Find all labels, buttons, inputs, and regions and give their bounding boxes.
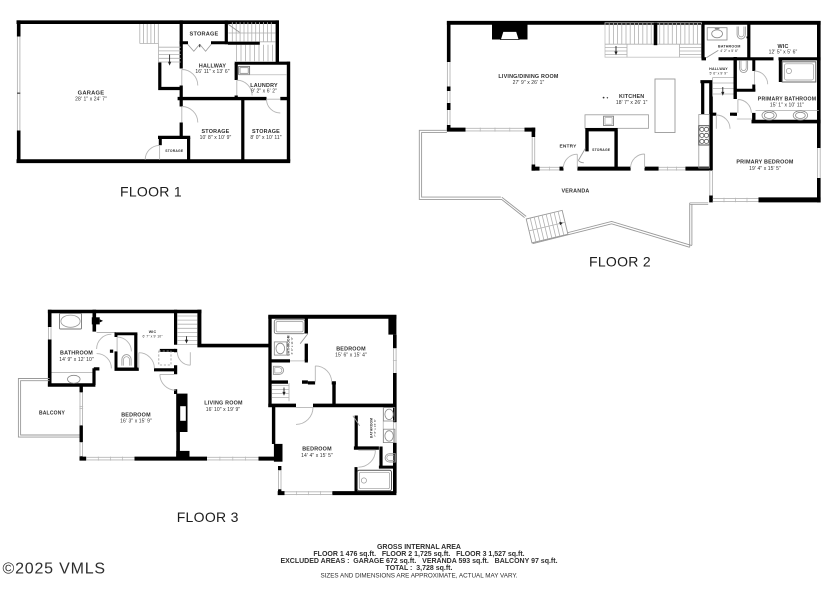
svg-text:14' 4" x 15' 5": 14' 4" x 15' 5" <box>301 453 333 459</box>
svg-text:BEDROOM: BEDROOM <box>302 447 332 453</box>
svg-text:6' 0" x 11' 0": 6' 0" x 11' 0" <box>290 337 294 355</box>
svg-text:STORAGE: STORAGE <box>190 31 219 37</box>
svg-text:15' 6" x 15' 4": 15' 6" x 15' 4" <box>335 353 367 359</box>
svg-text:BALCONY: BALCONY <box>39 410 66 416</box>
svg-text:STORAGE: STORAGE <box>165 149 184 153</box>
svg-text:12' 5" x 5' 6": 12' 5" x 5' 6" <box>769 50 798 56</box>
svg-text:FLOOR 2: FLOOR 2 <box>589 254 651 270</box>
svg-text:VERANDA: VERANDA <box>561 188 589 194</box>
svg-text:16' 3" x 15' 9": 16' 3" x 15' 9" <box>120 419 152 425</box>
svg-text:HALLWAY: HALLWAY <box>709 67 728 71</box>
svg-text:FLOOR 3: FLOOR 3 <box>177 509 239 525</box>
svg-text:6' 7" x 9' 10": 6' 7" x 9' 10" <box>143 335 164 339</box>
svg-text:WIC: WIC <box>149 330 157 334</box>
svg-text:GROSS INTERNAL AREA: GROSS INTERNAL AREA <box>377 544 461 551</box>
svg-text:SIZES AND DIMENSIONS ARE APPRO: SIZES AND DIMENSIONS ARE APPROXIMATE, AC… <box>320 573 517 580</box>
svg-text:TOTAL : 3,728 sq.ft.: TOTAL : 3,728 sq.ft. <box>386 565 453 572</box>
svg-text:5' 6" x 9' 9": 5' 6" x 9' 9" <box>709 72 728 76</box>
svg-text:28' 1" x 24' 7": 28' 1" x 24' 7" <box>75 96 107 102</box>
svg-text:10' 8" x 10' 9": 10' 8" x 10' 9" <box>200 135 232 141</box>
svg-text:19' 4" x 15' 5": 19' 4" x 15' 5" <box>749 166 781 172</box>
svg-text:FLOOR 1: FLOOR 1 <box>120 184 182 200</box>
svg-text:PRIMARY BEDROOM: PRIMARY BEDROOM <box>736 159 794 165</box>
svg-text:4' 2" x 5' 6": 4' 2" x 5' 6" <box>720 49 739 53</box>
svg-text:LIVING/DINING ROOM: LIVING/DINING ROOM <box>498 74 559 80</box>
svg-text:FLOOR 1 476 sq.ft. FLOOR 2 1: FLOOR 1 476 sq.ft. FLOOR 2 1,725 sq.ft. … <box>313 551 524 558</box>
svg-text:8' 0" x 10' 11": 8' 0" x 10' 11" <box>250 135 281 141</box>
svg-text:9' 2" x 6' 2": 9' 2" x 6' 2" <box>251 89 277 95</box>
svg-text:BEDROOM: BEDROOM <box>121 412 151 418</box>
svg-text:ENTRY: ENTRY <box>559 144 577 150</box>
svg-text:15' 1" x 10' 11": 15' 1" x 10' 11" <box>770 102 804 108</box>
svg-text:LIVING ROOM: LIVING ROOM <box>204 401 243 407</box>
svg-text:BEDROOM: BEDROOM <box>336 346 366 352</box>
svg-text:7' 8" x 15' 8": 7' 8" x 15' 8" <box>373 419 377 437</box>
svg-text:EXCLUDED AREAS : GARAGE 672 s: EXCLUDED AREAS : GARAGE 672 sq.ft. VERAN… <box>280 558 557 565</box>
svg-text:18' 7" x 26' 1": 18' 7" x 26' 1" <box>616 100 648 106</box>
svg-text:16' 11" x 13' 6": 16' 11" x 13' 6" <box>195 69 229 75</box>
svg-text:14' 9" x 12' 10": 14' 9" x 12' 10" <box>59 357 94 363</box>
svg-text:STORAGE: STORAGE <box>592 148 611 152</box>
svg-text:16' 10" x 19' 9": 16' 10" x 19' 9" <box>206 407 241 413</box>
svg-text:KITCHEN: KITCHEN <box>619 94 644 100</box>
svg-text:©2025 VMLS: ©2025 VMLS <box>3 561 106 578</box>
svg-text:BATHROOM: BATHROOM <box>718 45 741 49</box>
svg-text:27' 9" x 26' 1": 27' 9" x 26' 1" <box>513 80 545 86</box>
svg-text:BATHROOM: BATHROOM <box>60 351 93 357</box>
svg-text:GARAGE: GARAGE <box>78 90 105 96</box>
